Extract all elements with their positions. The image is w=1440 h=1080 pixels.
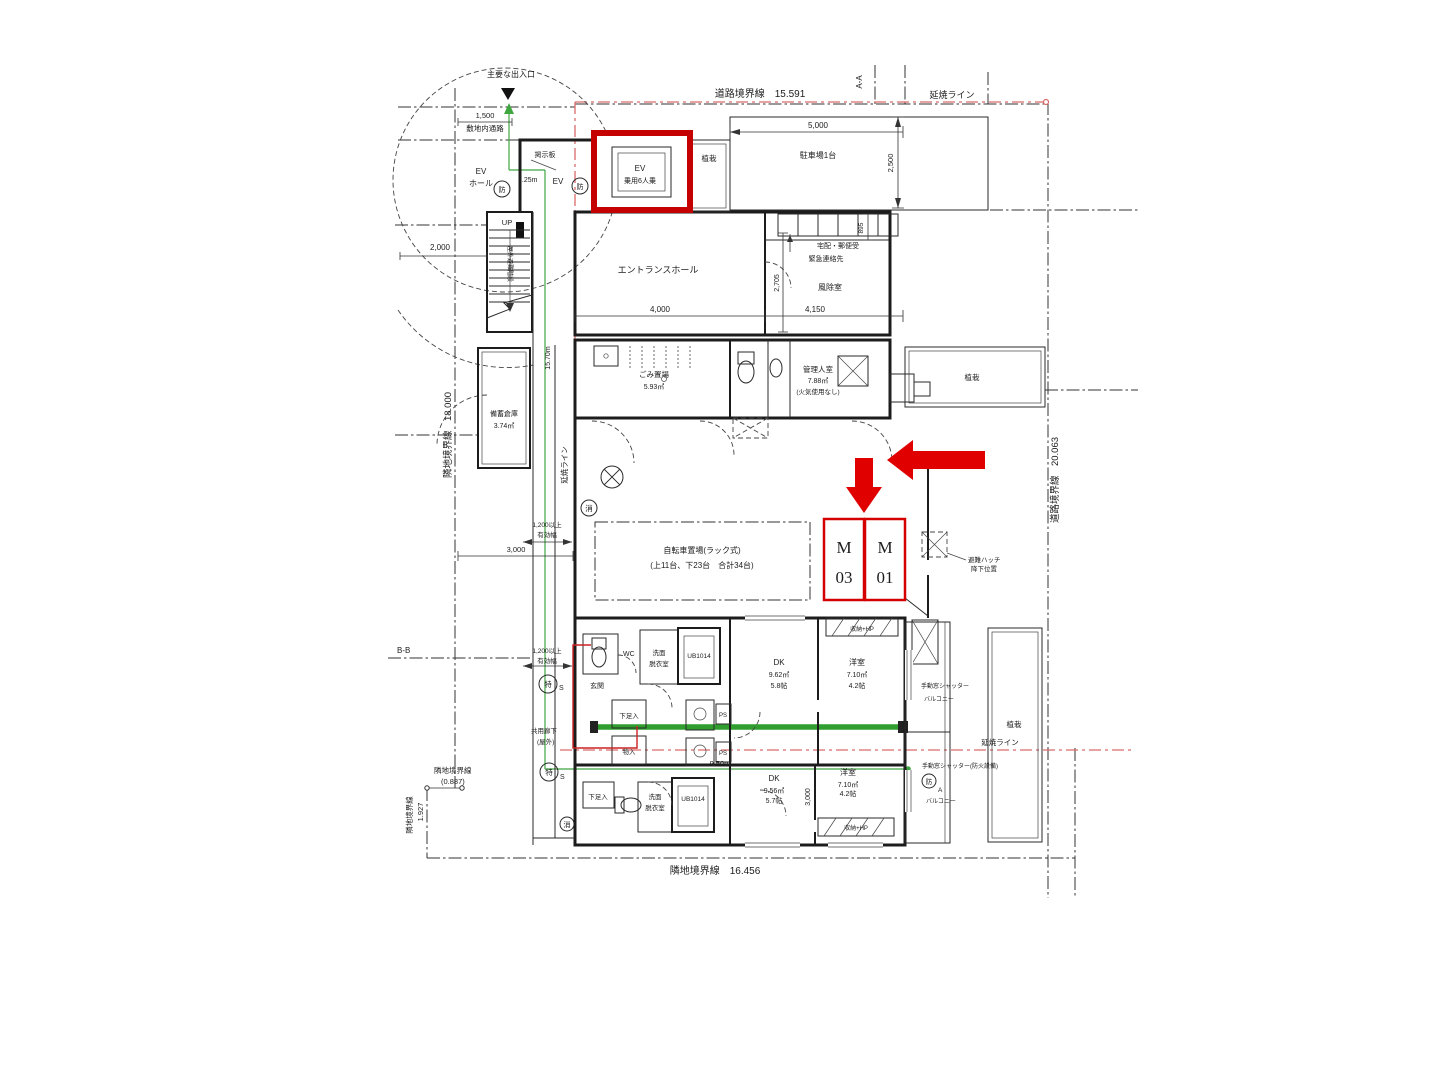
label-m03-letter: M	[836, 538, 851, 557]
label-unita-dk-area: 9.62㎡	[769, 671, 790, 679]
label-toku-lower-s: S	[560, 774, 565, 781]
label-neighbor-left: 隣地境界線 18.000	[442, 392, 454, 478]
label-m01-number: 01	[877, 568, 894, 587]
label-corridor-1: 共用廊下	[531, 726, 558, 735]
entry-triangle	[501, 88, 515, 100]
label-ext-mark-lower: 消	[564, 820, 571, 829]
label-site-path: 敷地内通路	[466, 123, 504, 133]
label-hatch-2: 降下位置	[971, 564, 998, 573]
route-arrow-up	[504, 103, 514, 114]
label-neighbor-corner-name: 隣地境界線	[434, 765, 472, 775]
label-ev-hall-1: EV	[476, 167, 487, 176]
label-ub-upper: UB1014	[687, 653, 711, 660]
label-dim-4150: 4,150	[805, 305, 826, 314]
label-main-entry: 主要な出入口	[487, 69, 535, 79]
label-emergency: 緊急連絡先	[809, 254, 844, 263]
label-toku-upper-s: S	[559, 685, 564, 692]
label-balcony-upper: バルコニー	[924, 696, 954, 703]
floor-plan-drawing: 道路境界線 15.591 延焼ライン A-A B-B 主要な出入口 1,500 …	[0, 0, 1440, 1080]
label-dim-3000-lower: 3,000	[805, 788, 812, 806]
label-dim-4000: 4,000	[650, 305, 671, 314]
label-storage-upper: 物入	[623, 747, 637, 756]
label-toku-upper: 特	[544, 679, 552, 689]
label-neighbor-corner2-value: 1.927	[416, 803, 425, 822]
label-up: UP	[502, 218, 512, 227]
label-unitb-dk-area: 9.56㎡	[764, 787, 785, 795]
label-road-boundary-right: 道路境界線 20.063	[1049, 437, 1061, 523]
label-unitb-dk-size: 5.7帖	[766, 796, 783, 805]
label-dim-125: 1.25m	[518, 177, 538, 184]
label-balcony-lower: バルコニー	[926, 798, 956, 805]
label-dim-2705: 2,705	[774, 274, 781, 292]
label-genkan: 玄関	[590, 681, 604, 690]
label-shutter-upper: 手動窓シャッター	[921, 682, 969, 690]
floor-plan-canvas: 道路境界線 15.591 延焼ライン A-A B-B 主要な出入口 1,500 …	[0, 0, 1440, 1080]
label-ensho-top: 延焼ライン	[929, 89, 974, 100]
label-neighbor-bottom: 隣地境界線 16.456	[670, 864, 761, 877]
label-wash-upper-1: 洗面	[653, 648, 667, 657]
label-shutter-fire: 手動窓シャッター(防火設備)	[922, 762, 998, 770]
label-fire-mark-3: 防	[926, 777, 933, 786]
label-unitb-bed: 洋室	[840, 767, 856, 777]
label-w1200-lower-2: 有効幅	[537, 656, 557, 665]
label-unitb-bed-size: 4.2帖	[840, 789, 857, 798]
label-outdoor-stairs: 屋外避難階段	[506, 246, 514, 282]
label-closet-upper: 収納+HP	[850, 625, 874, 633]
label-wash-upper-2: 脱衣室	[649, 659, 669, 668]
label-entrance-hall: エントランスホール	[618, 265, 699, 275]
dimension-lines	[400, 117, 904, 790]
label-w1200-upper-1: 1,200以上	[532, 520, 562, 529]
label-planting-top: 植栽	[702, 153, 717, 163]
label-unitb-dk: DK	[768, 774, 780, 783]
label-fire-mark-2: 防	[577, 182, 584, 191]
site-arcs	[393, 68, 617, 445]
label-unitb-bed-area: 7.10㎡	[838, 781, 859, 789]
label-stock-name: 備蓄倉庫	[490, 409, 518, 418]
label-bike-1: 自転車置場(ラック式)	[663, 545, 741, 555]
label-ev-car-2: 乗用6人乗	[624, 176, 656, 185]
label-garbage-area: 5.93㎡	[644, 383, 665, 391]
label-w1200-lower-1: 1,200以上	[532, 646, 562, 655]
label-manager-note: (火気使用なし)	[796, 387, 839, 396]
label-wash-lower-2: 脱衣室	[645, 803, 665, 812]
label-a-mark: A	[938, 787, 943, 794]
label-unita-bed-area: 7.10㎡	[847, 671, 868, 679]
label-closet-lower: 収納+HP	[844, 824, 868, 832]
label-ub-lower: UB1014	[681, 796, 705, 803]
red-arrow-down	[846, 458, 882, 513]
label-windbreak: 風除室	[818, 282, 842, 292]
label-ev-tag: EV	[553, 177, 564, 186]
label-unita-dk-size: 5.8帖	[771, 681, 788, 690]
label-bike-2: (上11台、下23台 合計34台)	[650, 560, 754, 570]
label-dim-2500: 2,500	[886, 154, 895, 173]
label-stock-area: 3.74㎡	[494, 422, 515, 430]
label-ev-hall-2: ホール	[469, 179, 493, 188]
label-dim-3000-left: 3,000	[507, 545, 526, 554]
label-fire-mark-1: 防	[499, 185, 506, 194]
label-garbage-name: ごみ置場	[639, 369, 669, 379]
label-wc: WC	[623, 651, 635, 658]
label-parking: 駐車場1台	[800, 150, 836, 160]
label-neighbor-corner-value: (0.887)	[441, 777, 465, 786]
label-dim-5000: 5,000	[808, 121, 829, 130]
label-m01-letter: M	[877, 538, 892, 557]
label-road-boundary-top: 道路境界線 15.591	[715, 87, 806, 100]
label-neighbor-corner2-name: 隣地境界線	[404, 796, 414, 834]
label-dim-1570: 15.70m	[545, 346, 552, 370]
label-unita-bed-size: 4.2帖	[849, 681, 866, 690]
m03-m01-boxes	[824, 519, 905, 600]
label-ensho-vertical: 延焼ライン	[559, 446, 569, 484]
label-unita-bed: 洋室	[849, 657, 865, 667]
label-toku-lower: 特	[545, 767, 553, 777]
label-planting-right: 植栽	[965, 372, 980, 382]
label-manager-area: 7.88㎡	[808, 377, 829, 385]
label-manager-name: 管理人室	[803, 364, 833, 374]
label-dim-895: 895	[858, 222, 865, 233]
label-planting-tall: 植栽	[1007, 719, 1022, 729]
label-wash-lower-1: 洗面	[649, 792, 663, 801]
label-shoe-upper: 下足入	[619, 712, 639, 720]
label-section-bb: B-B	[397, 646, 410, 655]
label-ps-1: PS	[719, 713, 727, 719]
label-w1200-upper-2: 有効幅	[537, 530, 557, 539]
label-bulletin: 掲示板	[535, 150, 556, 159]
label-section-aa: A-A	[855, 75, 864, 89]
label-ev-car-1: EV	[635, 164, 646, 173]
label-dim-950: 9.50m	[710, 759, 731, 768]
label-ensho-right: 延焼ライン	[981, 737, 1019, 747]
label-mailbox: 宅配・郵便受	[817, 241, 859, 250]
label-ext-mark: 消	[585, 503, 593, 513]
label-dim-2000: 2,000	[430, 243, 451, 252]
label-corridor-2: (屋外)	[537, 737, 554, 746]
label-ps-2: PS	[719, 751, 727, 757]
label-m03-number: 03	[836, 568, 853, 587]
label-unita-dk: DK	[773, 658, 785, 667]
label-dim-1500: 1,500	[476, 111, 495, 120]
label-shoe-lower: 下足入	[588, 793, 608, 801]
red-arrow-left	[887, 440, 985, 480]
label-hatch-1: 避難ハッチ	[968, 555, 1001, 564]
